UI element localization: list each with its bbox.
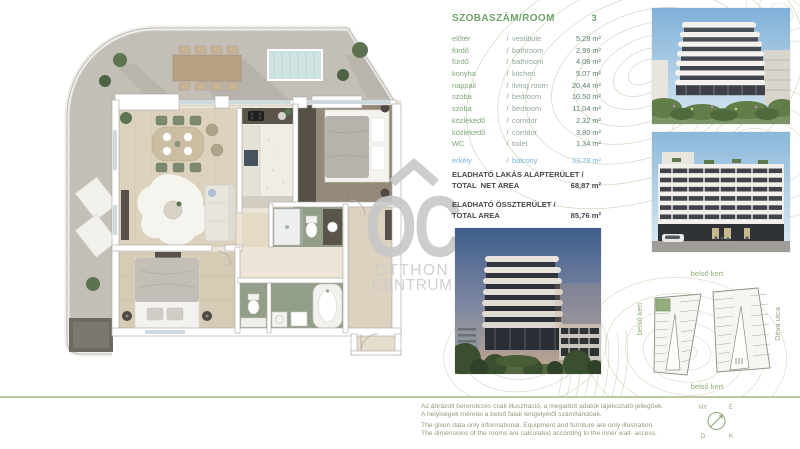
table-row: fürdő/bathroom2,99 m² (452, 45, 601, 57)
table-row: szoba/bedroom10,50 m² (452, 91, 601, 103)
sink-cabinet (291, 312, 307, 326)
site-label-garden-bottom: belső kert (691, 382, 724, 391)
table-row: szoba/bedroom11,04 m² (452, 103, 601, 115)
tv-unit (121, 190, 129, 240)
net-area-block: ELADHATÓ LAKÁS ALAPTERÜLET / TOTAL NET A… (452, 169, 601, 191)
kitchen-cabinets (242, 126, 260, 208)
table-row: nappali/living room20,44 m² (452, 80, 601, 92)
footer-divider-line (0, 396, 800, 398)
compass-label-s: D (701, 433, 706, 440)
building-photo-dusk (455, 228, 601, 374)
toilet-2 (248, 300, 259, 314)
building-photo-street (652, 132, 790, 252)
watermark-line2: CENTRUM (372, 277, 453, 292)
balcony-row: erkély/balcony33,78 m² (452, 155, 601, 167)
site-label-garden-top: belső kert (691, 269, 724, 278)
highlighted-apartment-unit (656, 299, 670, 311)
washing-machine (272, 312, 287, 327)
table-row: fürdő/bathroom4,08 m² (452, 56, 601, 68)
building-photo-day (652, 8, 790, 124)
total-area-value: 85,76 m² (571, 210, 601, 221)
cooktop (248, 111, 264, 121)
room-count: 3 (591, 13, 601, 24)
table-row: WC/toilet1,34 m² (452, 138, 601, 150)
total-area-label-hu: ELADHATÓ ÖSSZTERÜLET / (452, 199, 601, 210)
compass-icon: NY É D K (695, 400, 741, 442)
brochure-page: OC OTTHON CENTRUM SZOBASZÁM/ROOM 3 előté… (0, 0, 800, 449)
site-label-garden-left: belső kert (635, 302, 644, 335)
table-row: közlekedő/corridor3,80 m² (452, 127, 601, 139)
site-building-right (713, 288, 770, 372)
room-rows: előtér/vestibule5,28 m² fürdő/bathroom2,… (452, 33, 601, 167)
total-area-label-en: TOTAL AREA (452, 210, 500, 221)
site-plan: belső kert belső kert belső kert Déva ut… (628, 262, 798, 394)
watermark-glyph: OC (365, 179, 461, 275)
toilet-1 (306, 223, 317, 238)
otthon-centrum-watermark: OC OTTHON CENTRUM (360, 156, 464, 292)
wardrobe (298, 104, 316, 202)
site-label-street: Déva utca (773, 306, 782, 341)
entry-floor (353, 334, 397, 352)
compass-label-e: K (729, 433, 734, 440)
site-building-left (654, 294, 701, 375)
table-row: közlekedő/corridor2,32 m² (452, 115, 601, 127)
room-table-title: SZOBASZÁM/ROOM (452, 13, 555, 24)
table-row: konyha/kitchen5,07 m² (452, 68, 601, 80)
table-row: előtér/vestibule5,28 m² (452, 33, 601, 45)
outdoor-dining-table (173, 55, 241, 81)
total-area-block: ELADHATÓ ÖSSZTERÜLET / TOTAL AREA85,76 m… (452, 199, 601, 221)
compass-label-nw: NY (699, 404, 708, 411)
room-table: SZOBASZÁM/ROOM 3 előtér/vestibule5,28 m²… (452, 13, 601, 221)
net-area-label-hu: ELADHATÓ LAKÁS ALAPTERÜLET / (452, 169, 601, 180)
net-area-label-en: TOTAL NET AREA (452, 180, 519, 191)
net-area-value: 68,87 m² (571, 180, 601, 191)
compass-label-n: É (729, 404, 733, 411)
